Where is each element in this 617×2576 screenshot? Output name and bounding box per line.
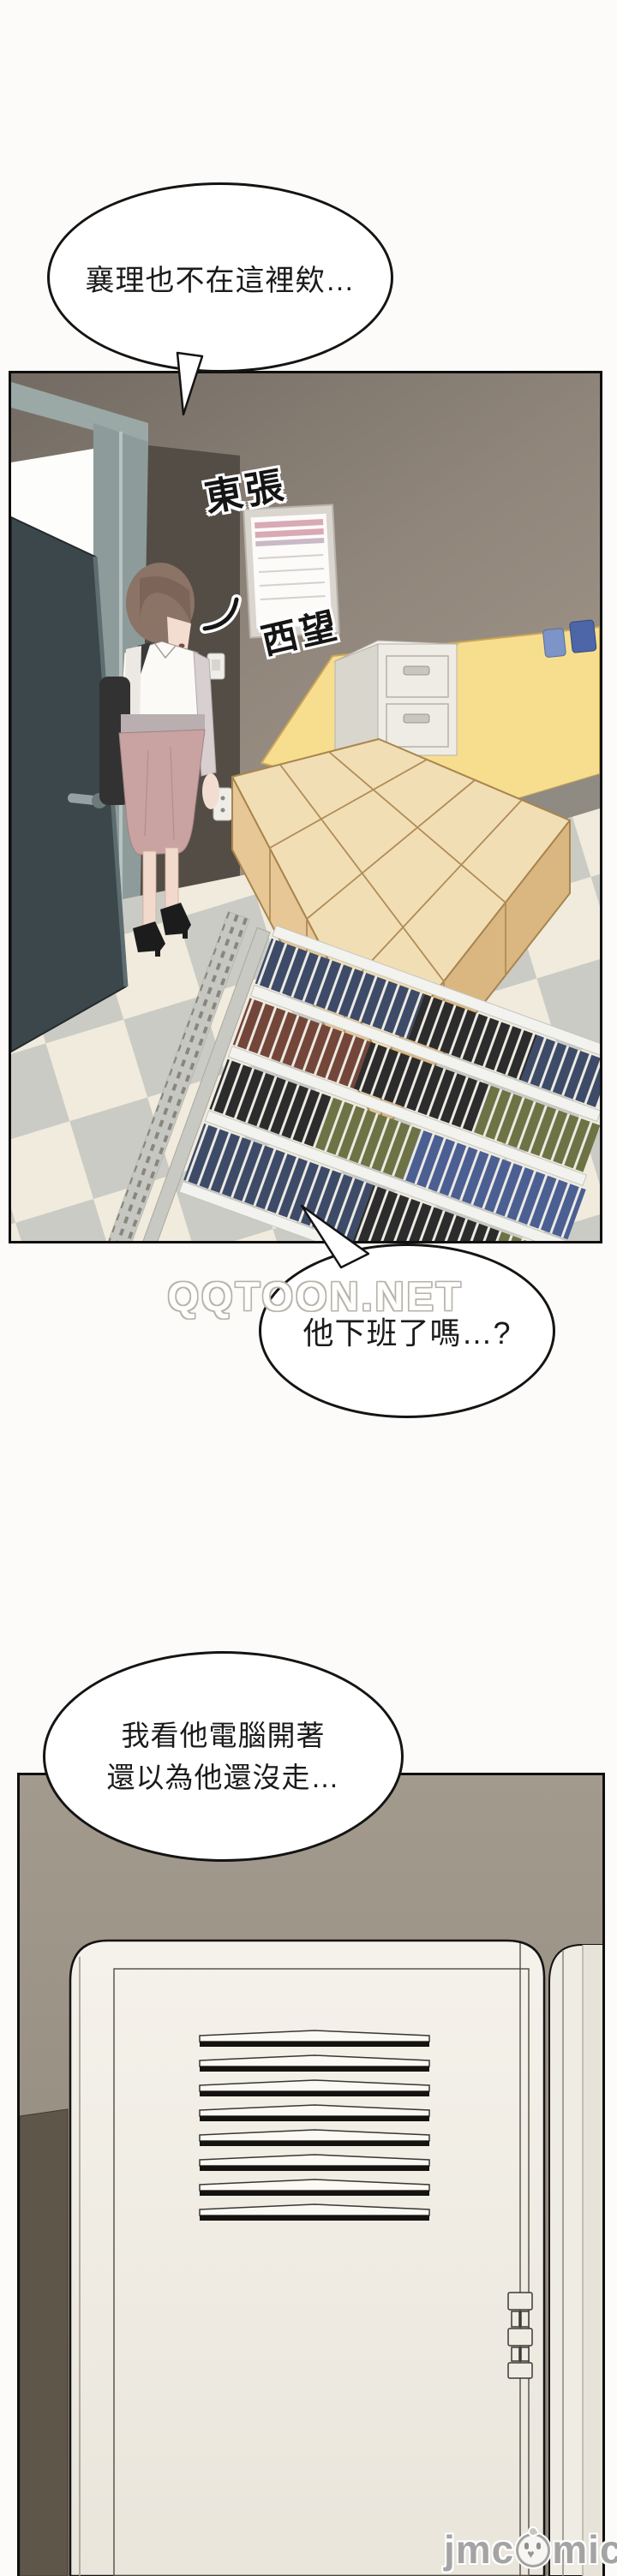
hand	[202, 773, 219, 809]
drawer-handle	[404, 714, 429, 723]
bubble-tail	[290, 1196, 379, 1278]
speech-line: 我看他電腦開著	[107, 1714, 340, 1757]
comic-page: 襄理也不在這裡欸… 東張 西望 他下班了嗎…? QQTOON.NET	[0, 0, 617, 2576]
locker-scene	[20, 1775, 602, 2576]
speech-bubble: 襄理也不在這裡欸…	[47, 182, 393, 373]
speech-text: 襄理也不在這裡欸…	[86, 257, 356, 299]
chick-face-icon: ♥	[516, 2533, 550, 2567]
side-wall-strip	[20, 2109, 68, 2576]
drawer-handle	[404, 666, 429, 675]
speech-text: 我看他電腦開著 還以為他還沒走…	[107, 1714, 340, 1799]
speech-line: 還以為他還沒走…	[107, 1756, 340, 1799]
watermark-qqtoon: QQTOON.NET	[101, 1273, 530, 1320]
panel-office	[9, 371, 602, 1243]
office-scene	[11, 373, 600, 1241]
leg	[165, 848, 178, 913]
speech-bubble: 我看他電腦開著 還以為他還沒走…	[43, 1651, 404, 1862]
light-switch-toggle	[212, 659, 220, 671]
watermark-text: jmc	[444, 2527, 514, 2572]
watermark-jmcomic: jmc♥mic	[444, 2526, 617, 2573]
panel-locker-door	[17, 1773, 605, 2576]
bubble-tail	[165, 348, 213, 420]
door-latch	[508, 2293, 532, 2378]
watermark-text: mic	[552, 2527, 617, 2572]
leg	[143, 851, 156, 927]
